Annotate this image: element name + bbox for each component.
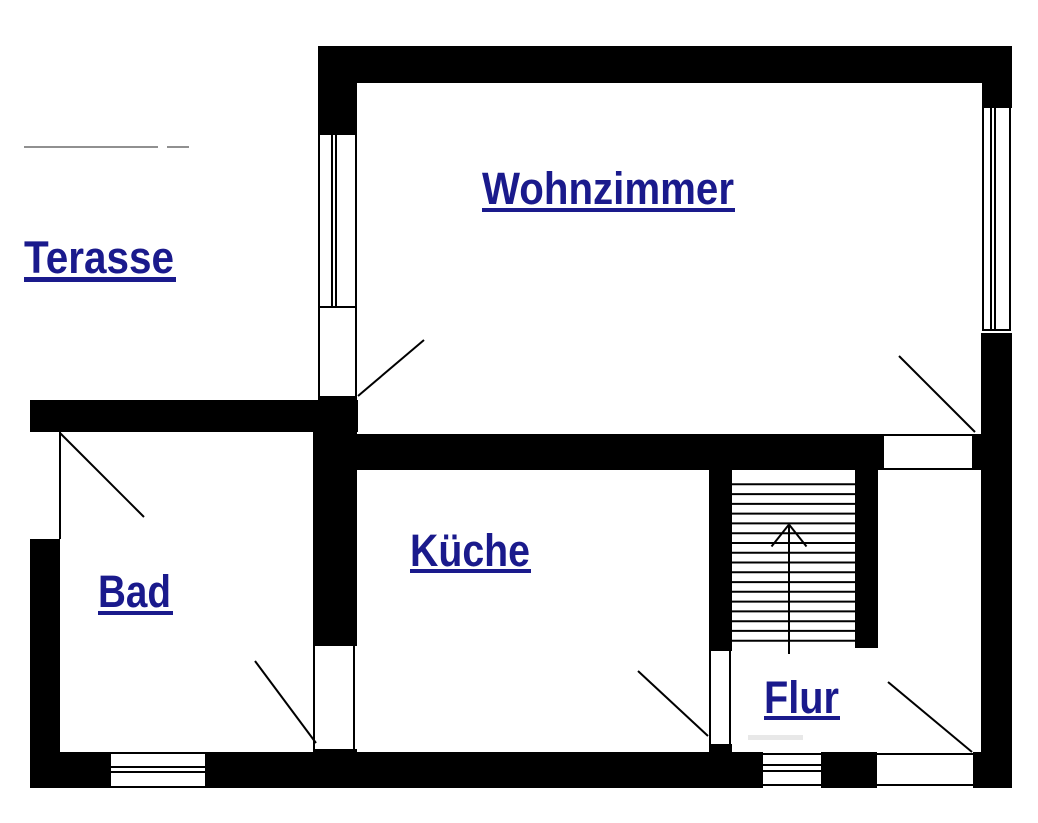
svg-text:Küche: Küche (410, 525, 530, 576)
svg-text:Wohnzimmer: Wohnzimmer (482, 163, 734, 214)
svg-text:Bad: Bad (98, 566, 171, 617)
svg-text:Flur: Flur (764, 672, 839, 723)
svg-text:Terasse: Terasse (24, 232, 174, 283)
